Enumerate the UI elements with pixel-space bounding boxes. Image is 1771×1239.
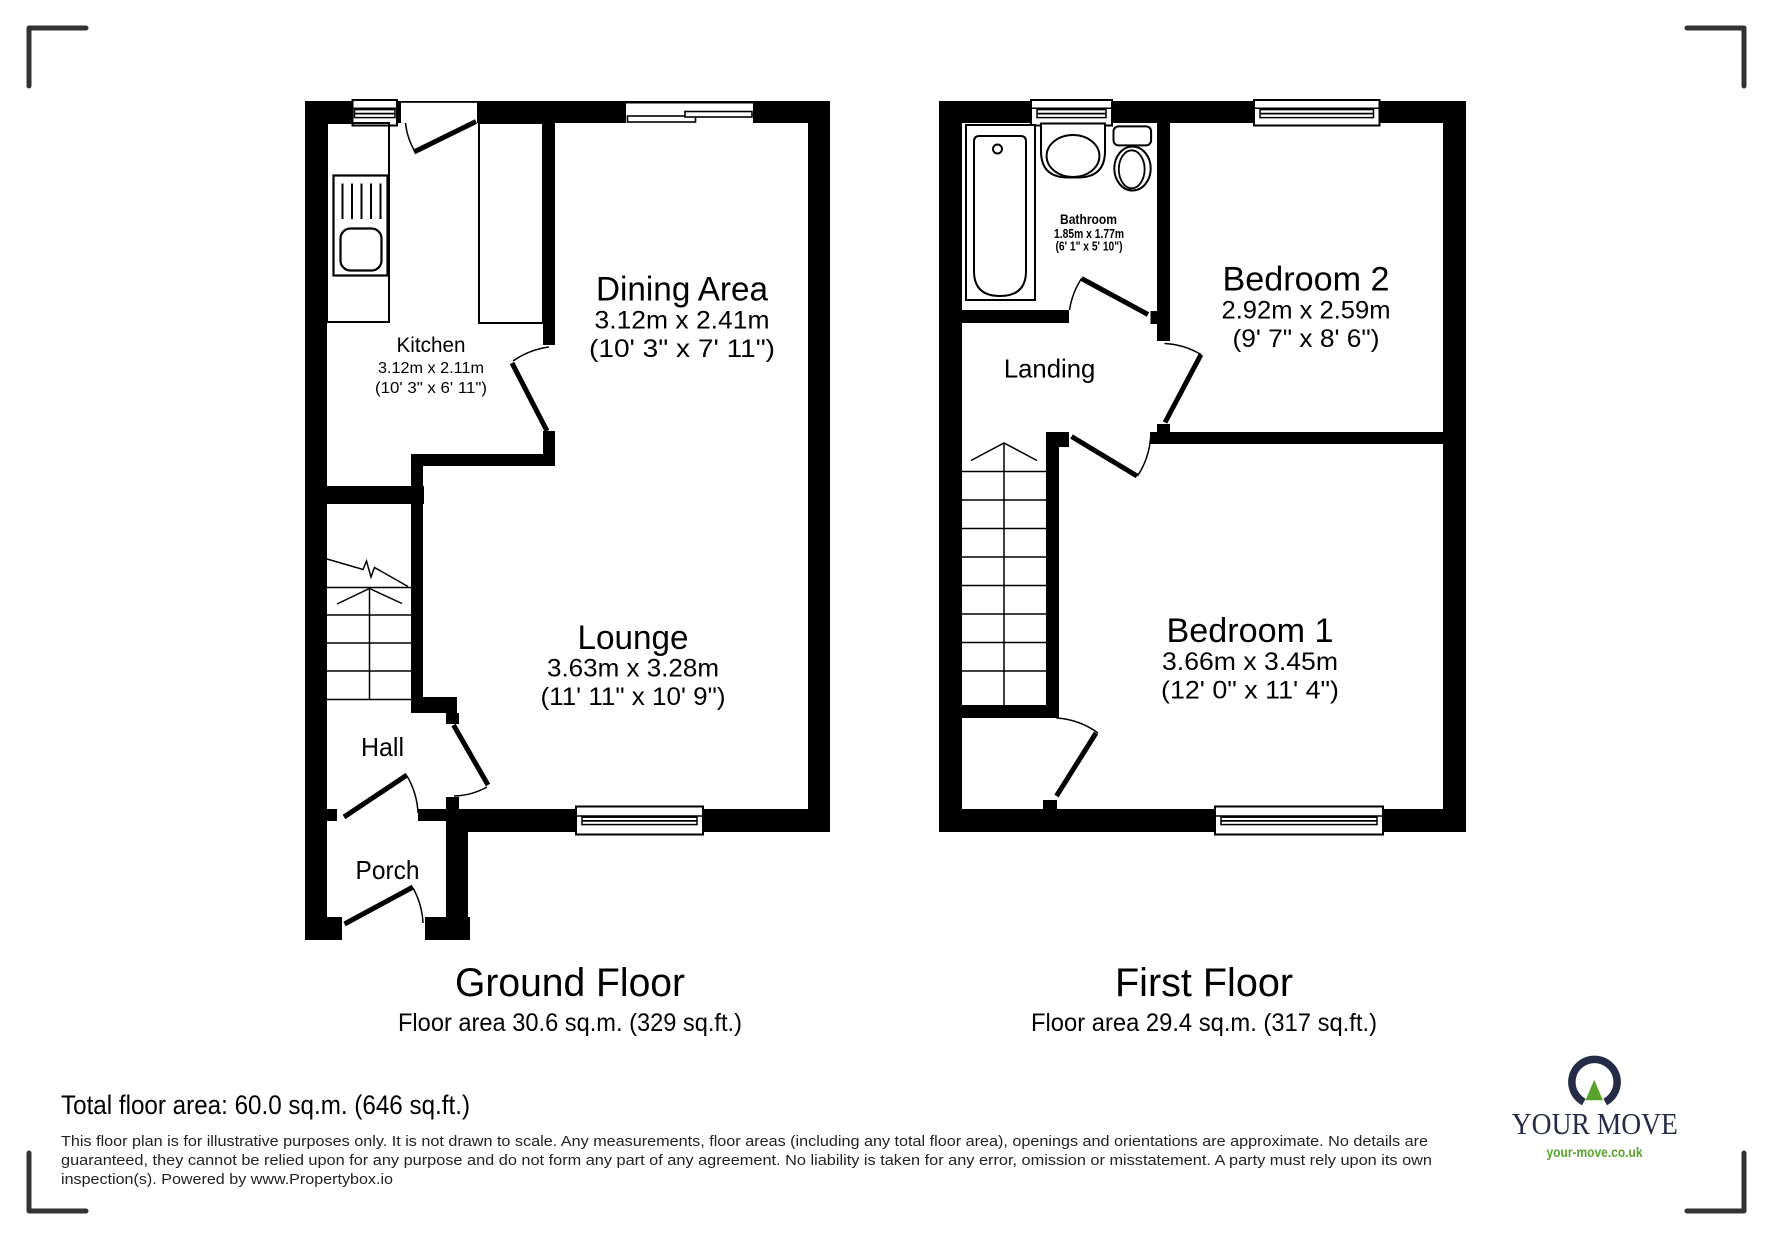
svg-text:guaranteed, they cannot be rel: guaranteed, they cannot be relied upon f… [61,1152,1432,1169]
svg-text:First Floor: First Floor [1115,961,1293,1005]
svg-text:3.63m x 3.28m: 3.63m x 3.28m [547,655,719,683]
svg-text:This floor plan is for illustr: This floor plan is for illustrative purp… [61,1133,1428,1150]
svg-text:Floor area 30.6 sq.m. (329 sq.: Floor area 30.6 sq.m. (329 sq.ft.) [398,1009,742,1037]
svg-text:Hall: Hall [361,732,404,762]
svg-text:(6' 1" x 5' 10"): (6' 1" x 5' 10") [1056,240,1123,254]
svg-text:your-move.co.uk: your-move.co.uk [1547,1145,1643,1160]
svg-text:(10' 3" x 7' 11"): (10' 3" x 7' 11") [589,335,775,363]
svg-text:Bathroom: Bathroom [1060,212,1117,227]
svg-text:Bedroom 2: Bedroom 2 [1223,261,1390,299]
svg-text:(12' 0" x 11' 4"): (12' 0" x 11' 4") [1161,677,1339,705]
svg-text:3.12m x 2.11m: 3.12m x 2.11m [378,360,484,377]
svg-text:Kitchen: Kitchen [397,334,466,357]
svg-text:(10' 3" x 6' 11"): (10' 3" x 6' 11") [375,380,487,397]
svg-text:Ground Floor: Ground Floor [455,961,685,1005]
svg-text:inspection(s). Powered by www.: inspection(s). Powered by www.Propertybo… [61,1171,393,1188]
svg-text:2.92m x 2.59m: 2.92m x 2.59m [1222,297,1391,325]
svg-text:YOUR MOVE: YOUR MOVE [1512,1107,1678,1141]
svg-text:Landing: Landing [1004,354,1096,384]
svg-text:Porch: Porch [356,855,420,885]
svg-text:Bedroom 1: Bedroom 1 [1167,612,1334,650]
svg-text:3.66m x 3.45m: 3.66m x 3.45m [1162,648,1338,676]
svg-text:Total floor area: 60.0 sq.m. (: Total floor area: 60.0 sq.m. (646 sq.ft.… [61,1090,470,1120]
svg-text:(9' 7" x 8' 6"): (9' 7" x 8' 6") [1233,325,1380,353]
svg-text:(11' 11" x 10' 9"): (11' 11" x 10' 9") [541,683,726,711]
svg-text:3.12m x 2.41m: 3.12m x 2.41m [595,307,770,335]
svg-text:Lounge: Lounge [578,619,689,657]
svg-text:Floor area 29.4 sq.m. (317 sq.: Floor area 29.4 sq.m. (317 sq.ft.) [1031,1009,1377,1037]
svg-text:Dining Area: Dining Area [596,271,768,309]
